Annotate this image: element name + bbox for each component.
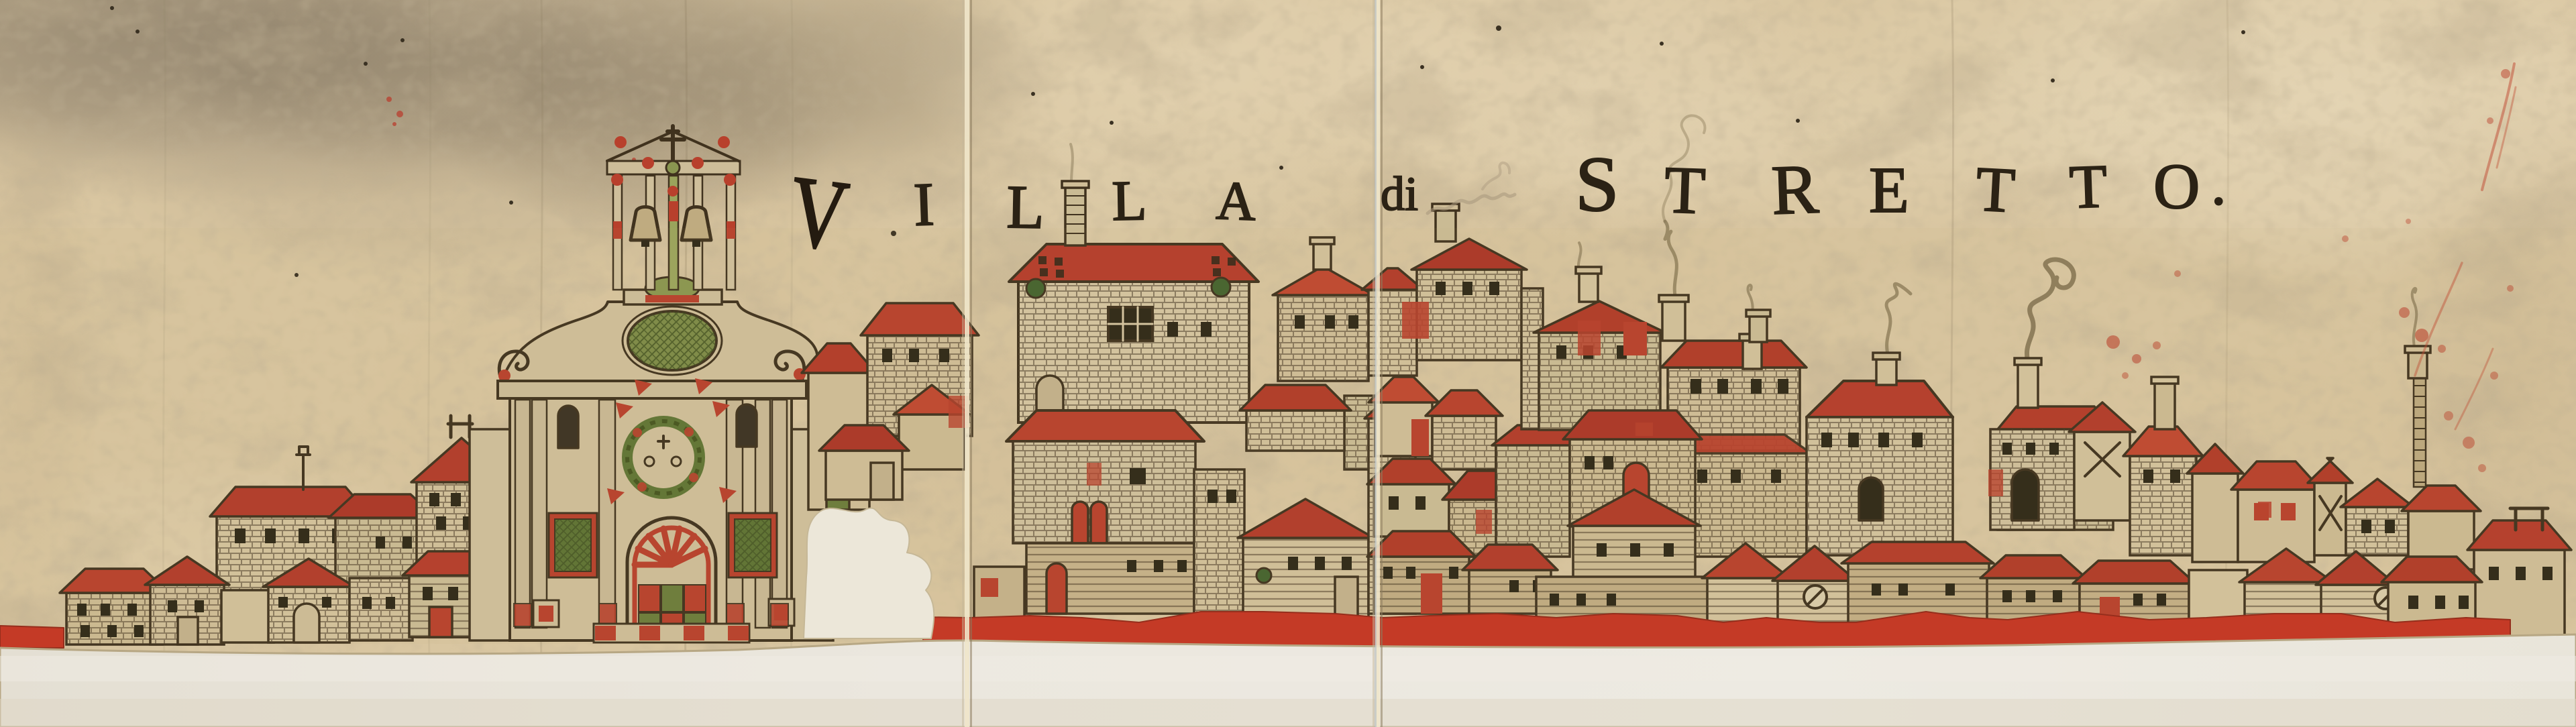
svg-text:I: I — [912, 170, 935, 239]
svg-text:L: L — [1006, 172, 1045, 241]
svg-text:T: T — [2068, 152, 2108, 221]
svg-text:di: di — [1381, 167, 1418, 221]
svg-text:T: T — [1974, 153, 2017, 226]
svg-text:S: S — [1575, 140, 1619, 228]
svg-text:O: O — [2153, 150, 2200, 222]
svg-text:T: T — [1663, 152, 1707, 228]
svg-text:R: R — [1770, 150, 1820, 229]
svg-text:A: A — [1215, 170, 1256, 232]
svg-text:.: . — [2211, 151, 2226, 217]
svg-text:E: E — [1869, 154, 1909, 227]
svg-text:L: L — [1112, 169, 1148, 233]
